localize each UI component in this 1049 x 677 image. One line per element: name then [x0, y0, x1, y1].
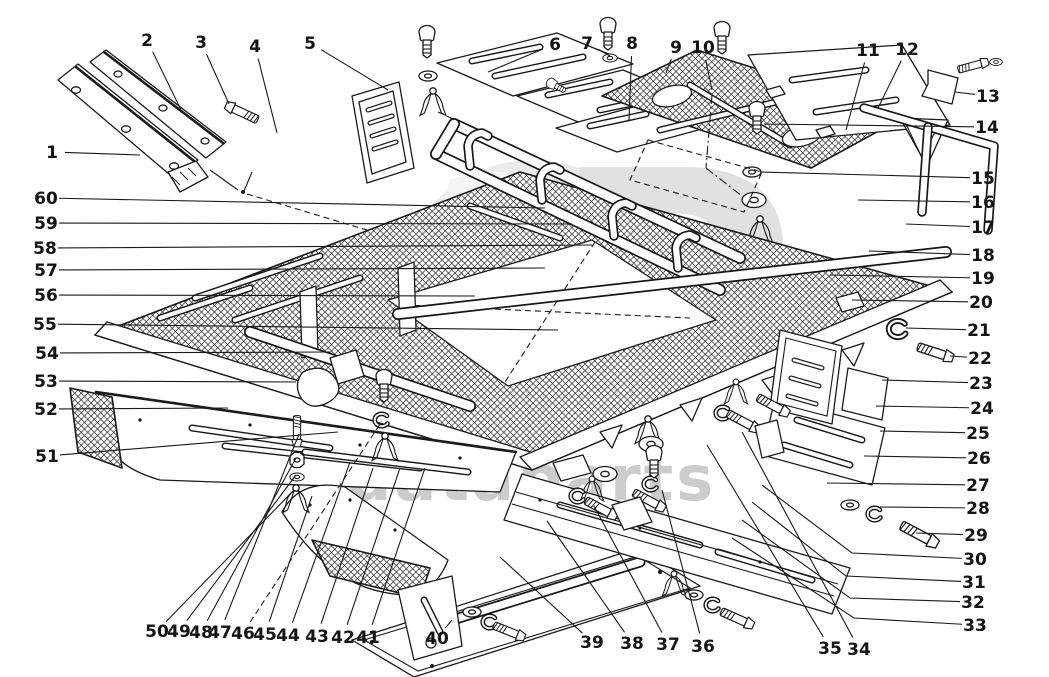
callout-9-number: 9	[670, 38, 682, 58]
callout-27-leader	[827, 483, 965, 485]
callout-28: 28	[880, 499, 990, 519]
callout-13-leader	[955, 92, 975, 94]
callout-26-number: 26	[967, 449, 991, 469]
callout-24-leader	[876, 406, 969, 408]
callout-3-leader	[206, 54, 229, 104]
callout-15-number: 15	[971, 169, 995, 189]
callout-38-number: 38	[620, 634, 644, 654]
callout-23-leader	[882, 380, 968, 383]
callout-42-number: 42	[331, 628, 355, 648]
callout-50-leader	[166, 490, 294, 622]
callout-52-number: 52	[34, 400, 58, 420]
callout-34-number: 34	[847, 640, 871, 660]
callout-28-leader	[880, 507, 965, 508]
callout-49-number: 49	[167, 622, 191, 642]
callout-23: 23	[882, 374, 993, 394]
callout-14-number: 14	[975, 118, 999, 138]
callout-5-number: 5	[304, 34, 316, 54]
callout-1-number: 1	[46, 143, 58, 163]
callout-21-leader	[906, 328, 966, 330]
callout-8-number: 8	[626, 34, 638, 54]
callout-16-leader	[858, 200, 970, 202]
callout-50: 50	[145, 490, 294, 642]
callout-32-number: 32	[961, 593, 985, 613]
callout-53-number: 53	[34, 372, 58, 392]
callout-55-number: 55	[33, 315, 57, 335]
callout-31-number: 31	[962, 573, 986, 593]
callout-28-number: 28	[966, 499, 990, 519]
callout-5-leader	[321, 50, 388, 90]
callout-19-number: 19	[971, 269, 995, 289]
callout-5: 5	[304, 34, 388, 90]
callout-40-number: 40	[425, 629, 449, 649]
callout-22: 22	[950, 349, 992, 369]
callout-11-number: 11	[856, 41, 880, 61]
callout-26: 26	[864, 449, 991, 469]
callout-4-number: 4	[249, 37, 261, 57]
callout-24: 24	[876, 399, 994, 419]
callout-43-number: 43	[305, 627, 329, 647]
callout-48: 48	[189, 458, 296, 643]
callout-23-number: 23	[969, 374, 993, 394]
callout-2-number: 2	[141, 31, 153, 51]
callout-6-number: 6	[549, 35, 561, 55]
callout-24-number: 24	[970, 399, 994, 419]
callout-36-number: 36	[691, 637, 715, 657]
callout-44-number: 44	[276, 626, 300, 646]
callout-17-number: 17	[971, 218, 995, 238]
callout-29-number: 29	[964, 526, 988, 546]
callout-39-number: 39	[580, 633, 604, 653]
callout-56-number: 56	[34, 286, 58, 306]
callout-22-number: 22	[968, 349, 992, 369]
callout-30-number: 30	[963, 550, 987, 570]
callout-16-number: 16	[971, 193, 995, 213]
callout-58-number: 58	[33, 239, 57, 259]
callout-37-number: 37	[656, 635, 680, 655]
callout-25-leader	[880, 431, 965, 433]
callout-4-leader	[258, 59, 277, 133]
callout-17-leader	[906, 224, 970, 226]
callout-27-number: 27	[966, 476, 990, 496]
callout-25: 25	[880, 424, 990, 444]
callout-49-leader	[187, 475, 296, 621]
callout-48-number: 48	[189, 623, 213, 643]
callout-50-number: 50	[145, 622, 169, 642]
callout-54-number: 54	[35, 344, 59, 364]
callout-51-number: 51	[35, 447, 59, 467]
callout-41-number: 41	[356, 628, 380, 648]
callout-17: 17	[906, 218, 995, 238]
callout-21: 21	[906, 321, 991, 341]
callout-60-number: 60	[34, 189, 58, 209]
callout-13: 13	[955, 87, 1000, 107]
callout-13-number: 13	[976, 87, 1000, 107]
callout-46-number: 46	[231, 624, 255, 644]
callout-57-number: 57	[34, 261, 58, 281]
callout-33-number: 33	[963, 616, 987, 636]
callout-12-number: 12	[895, 40, 919, 60]
callout-1: 1	[46, 143, 140, 163]
callout-20-number: 20	[969, 293, 993, 313]
callout-1-leader	[65, 152, 140, 155]
exploded-parts-diagram: P data parts	[0, 0, 1049, 677]
parts-catalog-page: P data parts	[0, 0, 1049, 677]
callout-49: 49	[167, 475, 296, 642]
callout-26-leader	[864, 456, 966, 458]
callout-3-number: 3	[195, 33, 207, 53]
callout-21-number: 21	[967, 321, 991, 341]
callout-10-number: 10	[691, 38, 715, 58]
callout-7-number: 7	[581, 34, 593, 54]
callout-3: 3	[195, 33, 229, 104]
callout-59-number: 59	[34, 214, 58, 234]
callout-18-number: 18	[971, 246, 995, 266]
callout-25-number: 25	[966, 424, 990, 444]
callout-35-number: 35	[818, 639, 842, 659]
callout-45-number: 45	[253, 625, 277, 645]
